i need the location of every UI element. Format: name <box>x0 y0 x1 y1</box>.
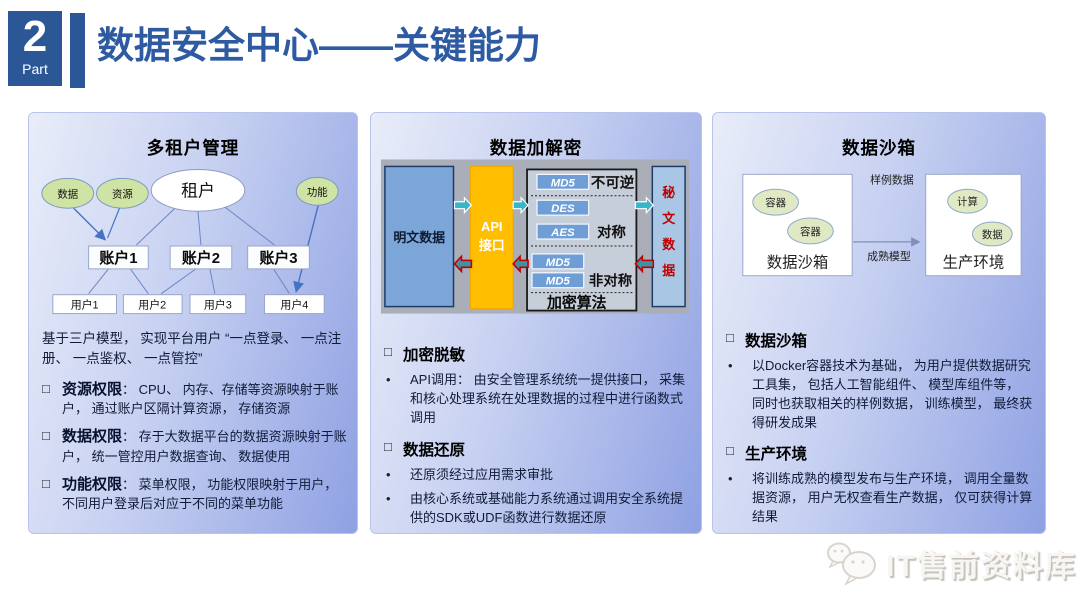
encryption-diagram: 明文数据 API 接口 MD5 不可逆 DES AES 对称 MD5 MD5 非… <box>371 159 701 319</box>
category-asymmetric: 非对称 <box>589 272 633 290</box>
resource-ellipse-label: 资源 <box>112 187 133 200</box>
bullet-marker: • <box>384 371 410 428</box>
container-label-1: 容器 <box>765 196 786 209</box>
algorithm-box-label: 加密算法 <box>546 294 607 312</box>
api-label-line1: API <box>481 219 503 234</box>
sandbox-section1-heading-row: □ 数据沙箱 <box>726 329 1035 351</box>
category-symmetric: 对称 <box>597 223 626 241</box>
line-tenant-account1 <box>136 205 178 245</box>
checkbox-marker: □ <box>42 379 62 420</box>
part-label: Part <box>8 62 62 77</box>
watermark: IT售前资料库 <box>826 540 1077 586</box>
ciphertext-char-4: 据 <box>662 263 675 278</box>
algo-chip-md5-2-label: MD5 <box>546 257 571 269</box>
sandbox-section2-heading-row: □ 生产环境 <box>726 442 1035 464</box>
tenant-item-resource: □ 资源权限： CPU、 内存、存储等资源映射于账户， 通过账户区隔计算资源， … <box>42 379 347 420</box>
arrow-data-to-account1 <box>74 208 105 239</box>
algo-chip-aes-label: AES <box>550 227 575 239</box>
sandbox-bullet: • 将训练成熟的模型发布与生产环境， 调用全量数据资源， 用户无权查看生产数据，… <box>726 470 1035 527</box>
ciphertext-char-2: 文 <box>662 211 675 226</box>
line-account1-user1 <box>89 269 109 294</box>
sample-data-label: 样例数据 <box>870 172 914 186</box>
production-box-label: 生产环境 <box>943 253 1005 272</box>
checkbox-marker: □ <box>384 343 403 365</box>
panel-sandbox: 数据沙箱 容器 容器 数据沙箱 计算 数据 生产环境 样例数据 成熟模型 <box>712 112 1046 534</box>
encryption-section1-heading-row: □ 加密脱敏 <box>384 343 691 365</box>
algo-chip-des-label: DES <box>551 203 575 215</box>
tenant-item-data-term: 数据权限 <box>62 428 122 445</box>
bullet-marker: • <box>726 470 752 527</box>
category-irreversible: 不可逆 <box>591 173 635 191</box>
encryption-bullet: • API调用： 由安全管理系统统一提供接口， 采集和核心处理系统在处理数据的过… <box>384 371 691 428</box>
line-tenant-account2 <box>198 211 201 245</box>
algo-chip-md5-1-label: MD5 <box>551 177 576 189</box>
mature-model-label: 成熟模型 <box>867 249 911 263</box>
user4-label: 用户4 <box>280 298 308 312</box>
user3-label: 用户3 <box>204 298 232 312</box>
line-resource-to-account1 <box>108 208 120 238</box>
encryption-bullet: • 还原须经过应用需求审批 <box>384 466 691 485</box>
tenant-item-resource-term: 资源权限 <box>62 381 122 398</box>
part-number: 2 <box>8 12 62 62</box>
account3-label: 账户3 <box>259 249 297 267</box>
tenant-ellipse-label: 租户 <box>181 181 215 200</box>
bullet-marker: • <box>726 357 752 432</box>
function-ellipse-label: 功能 <box>307 185 328 198</box>
title-divider-bar <box>70 13 85 88</box>
wechat-icon <box>826 540 880 586</box>
encryption-section1-heading: 加密脱敏 <box>403 343 465 365</box>
bullet-marker: • <box>384 466 410 485</box>
tenant-item-function: □ 功能权限： 菜单权限， 功能权限映射于用户， 不同用户登录后对应于不同的菜单… <box>42 474 347 515</box>
sandbox-box-label: 数据沙箱 <box>767 254 829 272</box>
encryption-bullet-text: API调用： 由安全管理系统统一提供接口， 采集和核心处理系统在处理数据的过程中… <box>410 371 691 428</box>
tenant-item-function-term: 功能权限 <box>62 476 122 493</box>
slide-title: 数据安全中心——关键能力 <box>97 15 541 69</box>
panel-encryption: 数据加解密 明文数据 API 接口 MD5 不可逆 DES AES 对称 MD5 <box>370 112 702 534</box>
sandbox-section2-heading: 生产环境 <box>745 442 807 464</box>
sandbox-section1-heading: 数据沙箱 <box>745 329 807 351</box>
checkbox-marker: □ <box>726 442 745 464</box>
line-account2-user2 <box>161 269 196 294</box>
algo-chip-md5-3-label: MD5 <box>546 276 571 288</box>
panel-title-sandbox: 数据沙箱 <box>713 113 1045 160</box>
container-label-2: 容器 <box>800 225 821 238</box>
sandbox-bullet-text: 以Docker容器技术为基础， 为用户提供数据研究工具集， 包括人工智能组件、 … <box>752 357 1035 432</box>
account1-label: 账户1 <box>99 249 137 267</box>
encryption-section2-heading-row: □ 数据还原 <box>384 438 691 460</box>
panel-title-encryption: 数据加解密 <box>371 113 701 160</box>
api-label-line2: 接口 <box>479 238 505 253</box>
slide: 2 Part 数据安全中心——关键能力 多租户管理 <box>0 0 1080 608</box>
data-label-prod: 数据 <box>982 228 1003 241</box>
encryption-bullet: • 由核心系统或基础能力系统通过调用安全系统提供的SDK或UDF函数进行数据还原 <box>384 490 691 528</box>
compute-label: 计算 <box>957 195 978 208</box>
multi-tenant-text: 基于三户模型， 实现平台用户 “一点登录、 一点注册、 一点鉴权、 一点管控” … <box>42 329 347 521</box>
encryption-section2-heading: 数据还原 <box>403 438 465 460</box>
checkbox-marker: □ <box>42 474 62 515</box>
panel-multi-tenant: 多租户管理 数据 资源 租户 <box>28 112 358 534</box>
sandbox-bullet: • 以Docker容器技术为基础， 为用户提供数据研究工具集， 包括人工智能组件… <box>726 357 1035 432</box>
bullet-marker: • <box>384 490 410 528</box>
line-tenant-account3 <box>224 206 275 245</box>
account2-label: 账户2 <box>182 249 220 267</box>
data-ellipse-label: 数据 <box>57 187 78 200</box>
ciphertext-char-1: 秘 <box>662 185 675 200</box>
sandbox-diagram: 容器 容器 数据沙箱 计算 数据 生产环境 样例数据 成熟模型 <box>713 163 1045 289</box>
user2-label: 用户2 <box>138 298 166 312</box>
checkbox-marker: □ <box>42 426 62 467</box>
encryption-bullet-text: 还原须经过应用需求审批 <box>410 466 553 485</box>
checkbox-marker: □ <box>726 329 745 351</box>
plaintext-label: 明文数据 <box>393 230 445 245</box>
sandbox-bullet-text: 将训练成熟的模型发布与生产环境， 调用全量数据资源， 用户无权查看生产数据， 仅… <box>752 470 1035 527</box>
multi-tenant-diagram: 数据 资源 租户 功能 账户1 账户2 账户3 用户1 用户2 用户3 用户4 <box>29 165 357 325</box>
user1-label: 用户1 <box>71 298 99 312</box>
checkbox-marker: □ <box>384 438 403 460</box>
tenant-item-data: □ 数据权限： 存于大数据平台的数据资源映射于账户， 统一管控用户数据查询、 数… <box>42 426 347 467</box>
sandbox-text: □ 数据沙箱 • 以Docker容器技术为基础， 为用户提供数据研究工具集， 包… <box>726 319 1035 533</box>
encryption-bullet-text: 由核心系统或基础能力系统通过调用安全系统提供的SDK或UDF函数进行数据还原 <box>410 490 691 528</box>
panel-title-multi-tenant: 多租户管理 <box>29 113 357 160</box>
part-badge: 2 Part <box>8 11 62 86</box>
watermark-text: IT售前资料库 <box>886 541 1077 585</box>
line-account1-user2 <box>130 269 148 294</box>
line-account2-user3 <box>210 269 215 294</box>
line-account3-user4 <box>274 269 290 294</box>
tenant-intro: 基于三户模型， 实现平台用户 “一点登录、 一点注册、 一点鉴权、 一点管控” <box>42 329 347 370</box>
ciphertext-char-3: 数 <box>662 237 675 252</box>
encryption-text: □ 加密脱敏 • API调用： 由安全管理系统统一提供接口， 采集和核心处理系统… <box>384 333 691 534</box>
